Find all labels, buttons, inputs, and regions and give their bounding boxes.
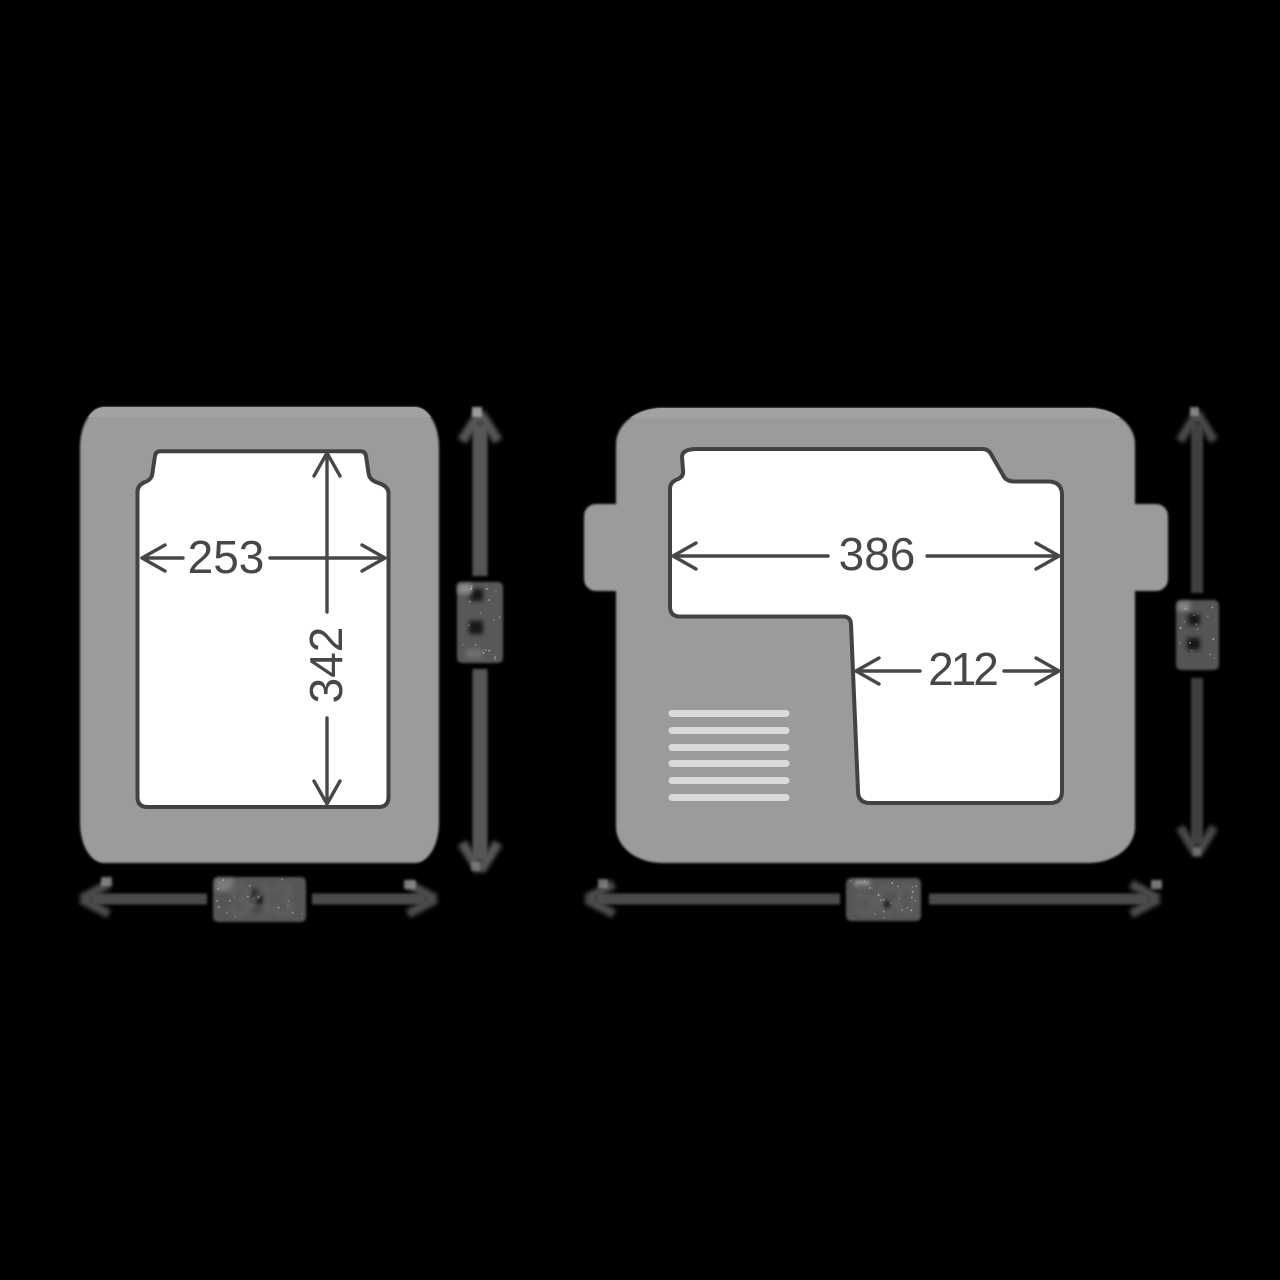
svg-text:342: 342 bbox=[300, 627, 352, 704]
svg-text:386: 386 bbox=[839, 528, 916, 580]
svg-text:560: 560 bbox=[853, 876, 917, 925]
svg-text:212: 212 bbox=[928, 643, 997, 695]
svg-text:253: 253 bbox=[188, 531, 265, 583]
svg-text:343: 343 bbox=[227, 874, 294, 926]
